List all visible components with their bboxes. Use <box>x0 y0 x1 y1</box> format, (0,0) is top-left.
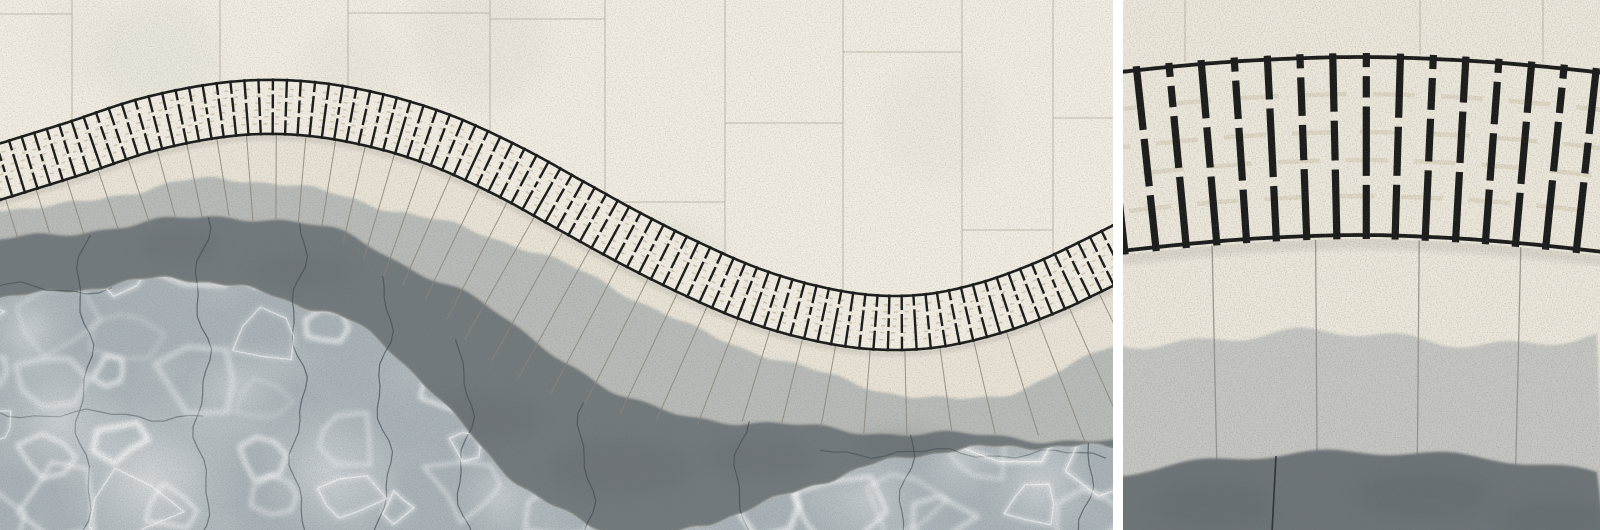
bench-detail-panel <box>1123 0 1600 530</box>
plan-view-canvas <box>0 0 1113 530</box>
granite-grain-texture <box>0 0 1113 530</box>
granite-grain-texture <box>1123 0 1600 530</box>
plan-view-panel <box>0 0 1113 530</box>
panel-gap <box>1113 0 1123 530</box>
landscape-plan-rendering <box>0 0 1600 530</box>
detail-view-canvas <box>1123 0 1600 530</box>
